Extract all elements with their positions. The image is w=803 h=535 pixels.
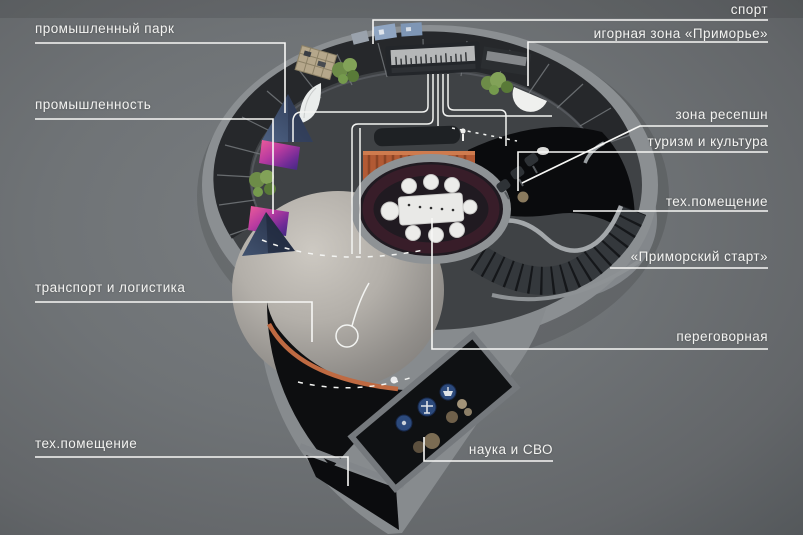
label-industry: промышленность [35, 97, 151, 112]
label-tech-room-left: тех.помещение [35, 436, 137, 451]
anchor-dot-icon [402, 421, 406, 425]
label-industrial-park: промышленный парк [35, 21, 174, 36]
label-tourism-culture: туризм и культура [648, 134, 768, 149]
label-sport: спорт [731, 2, 768, 17]
label-primorsky-start: «Приморский старт» [631, 249, 768, 264]
callout-tech-left [35, 457, 348, 486]
label-gambling-zone: игорная зона «Приморье» [594, 26, 768, 41]
label-science-svo: наука и СВО [469, 442, 553, 457]
floor-plan [0, 0, 803, 535]
label-meeting-room: переговорная [676, 329, 768, 344]
label-tech-room-right: тех.помещение [666, 194, 768, 209]
video-wall-stand [385, 42, 480, 77]
floor-plan-infographic: промышленный парк промышленность транспо… [0, 0, 803, 535]
meeting-room-oval [351, 154, 511, 264]
label-transport-logistics: транспорт и логистика [35, 280, 185, 295]
label-reception-zone: зона ресепшн [675, 107, 768, 122]
reception-desk [374, 126, 461, 147]
